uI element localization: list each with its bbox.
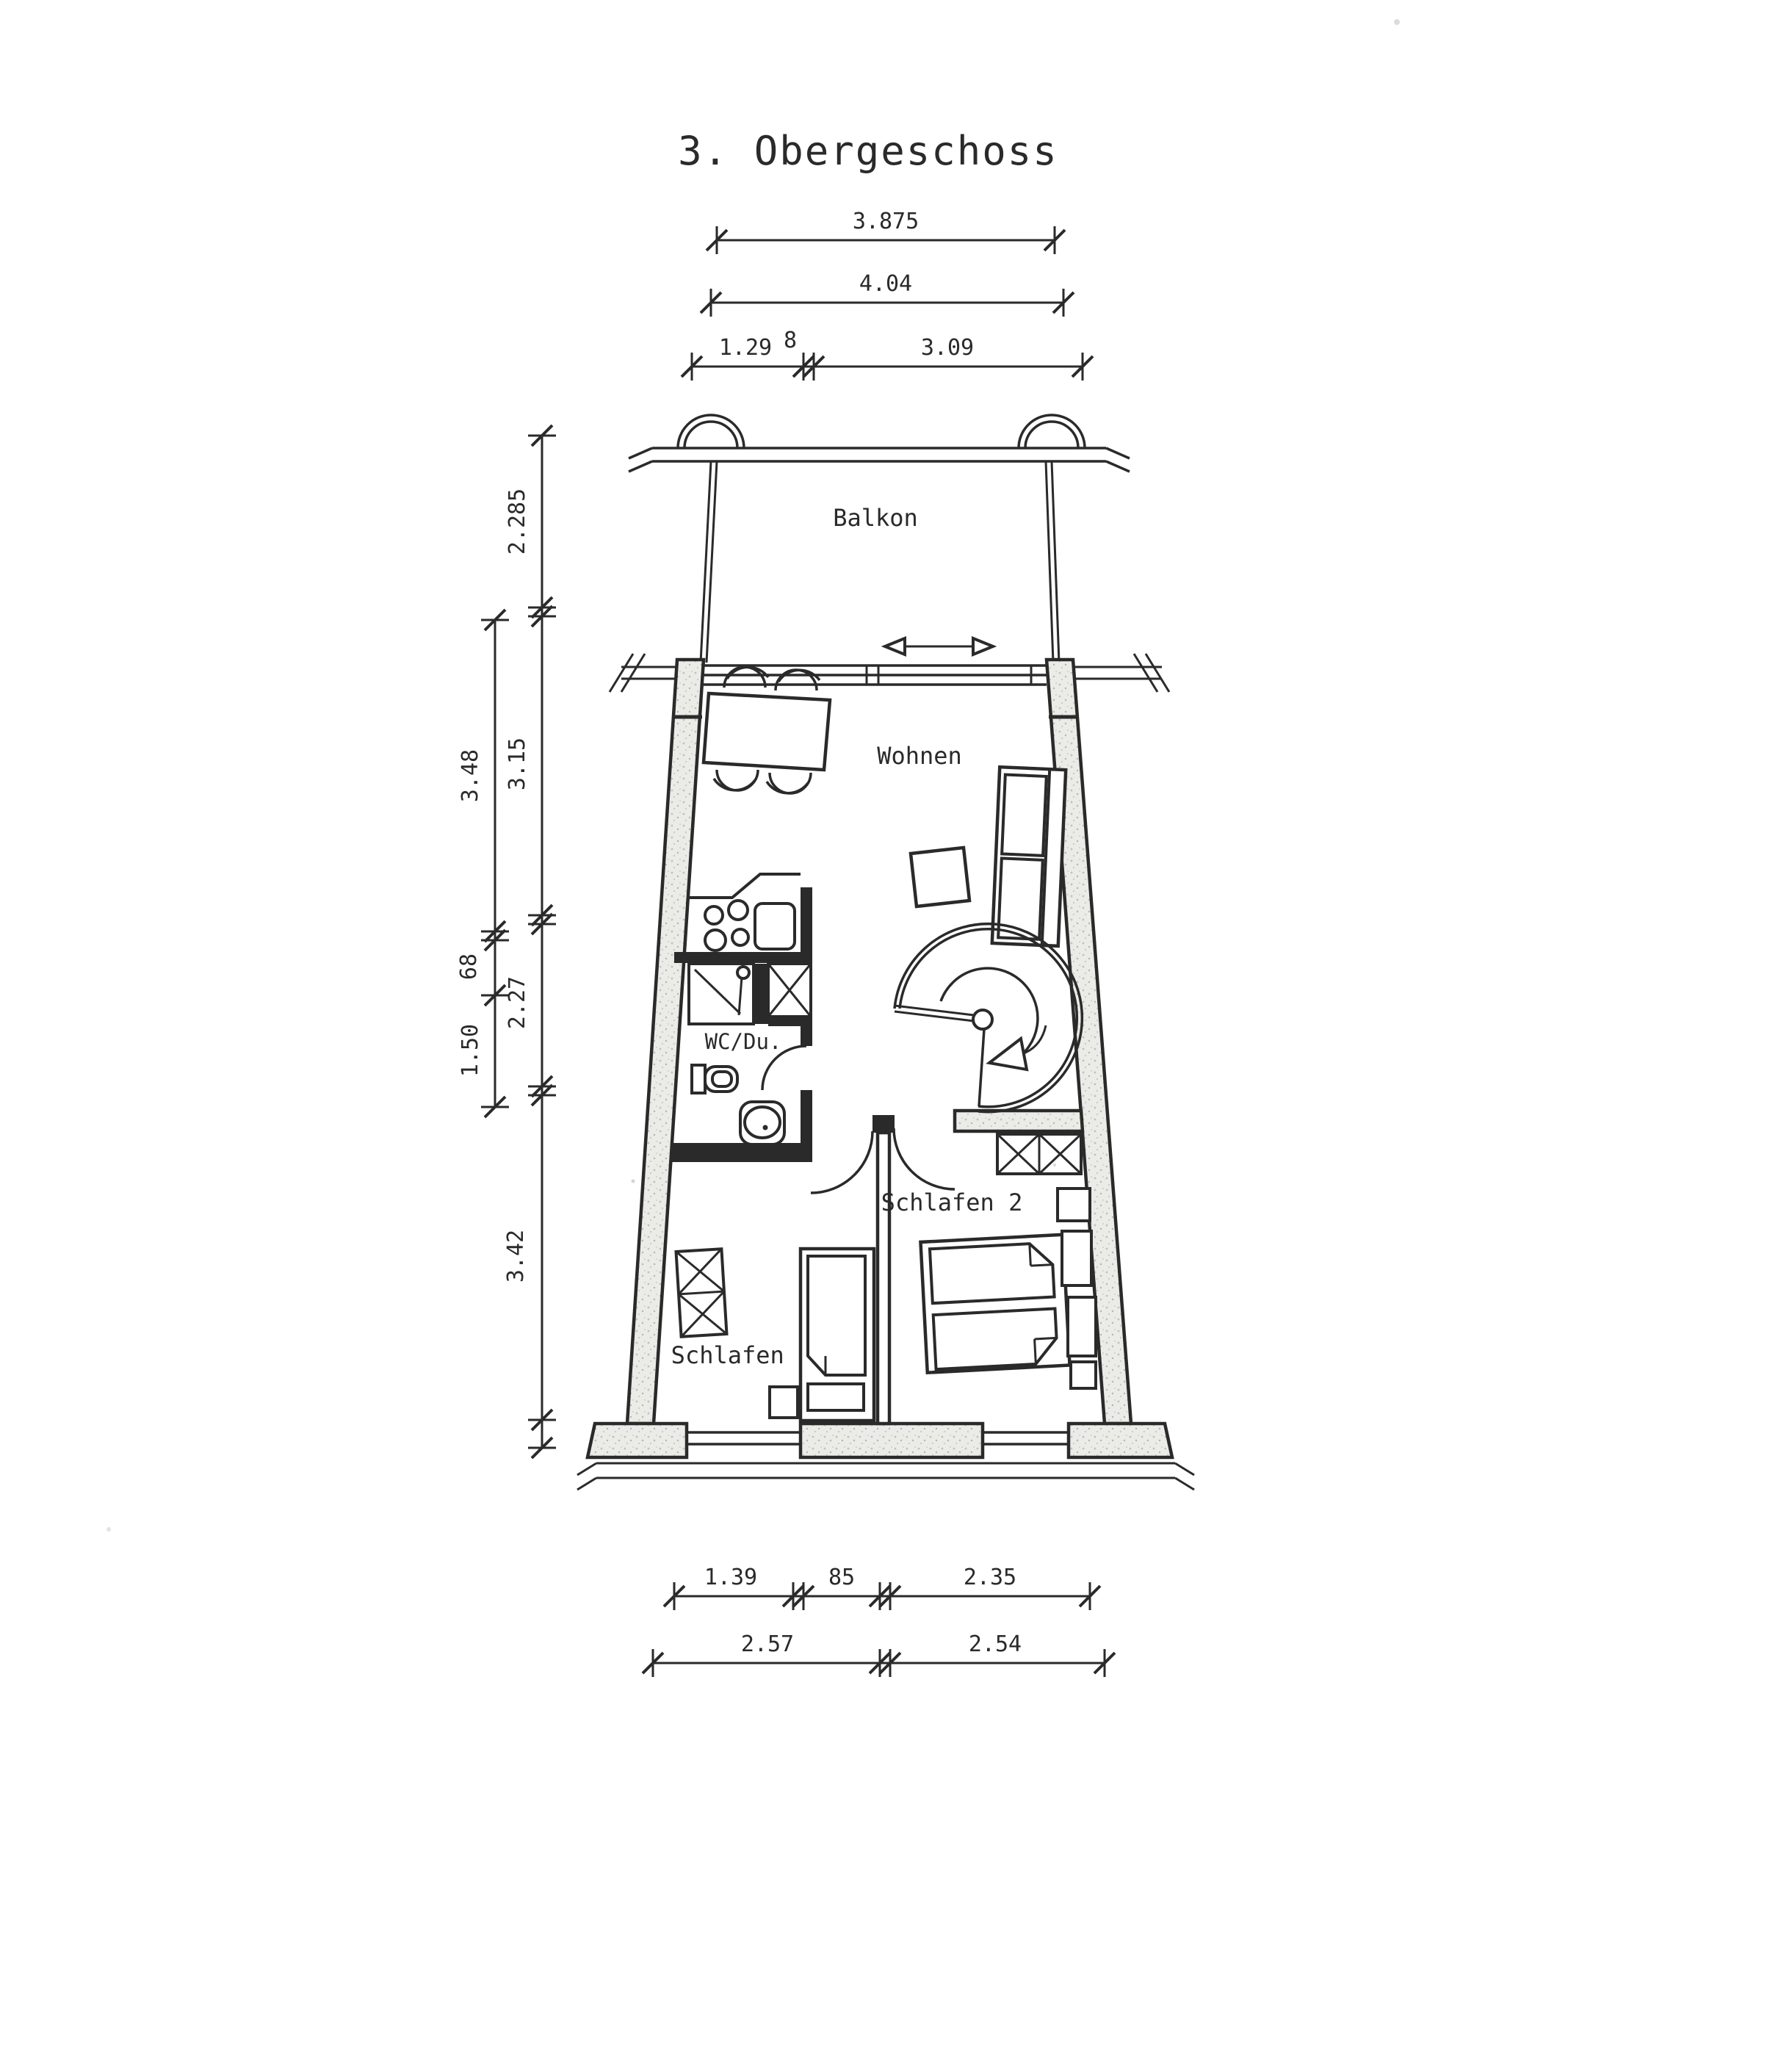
balcony-awning-left-icon — [678, 415, 744, 448]
window-bedroom1 — [687, 1432, 801, 1444]
balcony-awning-right-icon — [1019, 415, 1085, 448]
dim-label-bottom-257: 2.57 — [741, 1631, 794, 1657]
duct-shaft-icon — [768, 964, 811, 1017]
dim-label-left-227: 2.27 — [505, 976, 530, 1029]
wardrobe-bedroom2-icon — [997, 1134, 1081, 1174]
door-arc-bedroom2 — [894, 1128, 955, 1189]
wall-wc-bottom — [670, 1143, 812, 1162]
wall-partition-bedrooms — [878, 1133, 889, 1424]
dimension-chain-bottom: 1.39 85 2.35 2.57 2.54 — [643, 1565, 1115, 1677]
wall-wc-upper — [801, 1026, 812, 1046]
dim-label-bottom-235: 2.35 — [964, 1565, 1016, 1590]
washbasin-icon — [740, 1102, 784, 1144]
room-label-wc-du: WC/Du. — [705, 1029, 782, 1054]
kitchen — [687, 874, 801, 951]
bedroom-1: Schlafen 1 — [671, 1249, 874, 1421]
wall-bedroom2-top — [955, 1111, 1083, 1131]
dim-label-left-150: 1.50 — [458, 1024, 483, 1077]
room-label-schlafen1: Schlafen 1 — [671, 1341, 813, 1369]
kitchen-sink-icon — [755, 904, 795, 949]
coffee-table — [911, 848, 969, 906]
floorplan-drawing: 3. Obergeschoss 3.875 4.04 1.29 8 3.09 2… — [0, 0, 1792, 2045]
nightstand-bedroom1 — [770, 1387, 798, 1418]
wall-partition-cap — [872, 1115, 895, 1133]
scanned-floorplan-page: 3. Obergeschoss 3.875 4.04 1.29 8 3.09 2… — [0, 0, 1792, 2045]
wardrobe-bedroom1-icon — [676, 1249, 727, 1337]
wall-bottom — [577, 1424, 1194, 1490]
dim-label-top-309: 3.09 — [921, 335, 974, 361]
wall-shower-duct — [754, 964, 768, 1024]
dimension-chain-top: 3.875 4.04 1.29 8 3.09 — [682, 209, 1093, 380]
dim-label-top-404: 4.04 — [859, 271, 912, 297]
spiral-staircase — [895, 924, 1082, 1112]
dim-label-bottom-139: 1.39 — [704, 1565, 757, 1590]
balcony: Balkon — [629, 415, 1130, 663]
dim-label-top-8: 8 — [784, 328, 797, 353]
door-arc-bedroom1 — [811, 1131, 872, 1193]
dim-label-left-342: 3.42 — [503, 1230, 529, 1283]
sofa — [992, 767, 1066, 946]
page-title: 3. Obergeschoss — [678, 128, 1058, 174]
single-bed — [801, 1249, 874, 1421]
dim-label-left-2285: 2.285 — [505, 488, 530, 555]
sliding-door-arrow-icon — [885, 638, 993, 654]
dim-label-left-315: 3.15 — [505, 737, 530, 790]
dim-label-left-348: 3.48 — [458, 749, 483, 802]
toilet-icon — [692, 1065, 737, 1093]
room-label-balkon: Balkon — [833, 504, 918, 532]
dim-label-top-3875: 3.875 — [853, 209, 919, 234]
dining-table — [704, 693, 830, 770]
stove-icon — [705, 901, 748, 951]
dim-label-bottom-254: 2.54 — [969, 1631, 1022, 1657]
wall-kitchen-side — [801, 887, 812, 958]
window-sill-lines — [577, 1463, 1194, 1490]
shower-icon — [689, 964, 754, 1024]
wall-kitchen-bottom — [674, 952, 812, 963]
dim-label-top-129: 1.29 — [719, 335, 772, 361]
neighbor-wall-cut-right — [1073, 654, 1169, 692]
double-bed — [920, 1235, 1069, 1373]
window-bedroom2 — [983, 1432, 1069, 1444]
bathroom: WC/Du. — [689, 964, 811, 1144]
scan-artifacts — [106, 19, 1400, 1532]
room-label-wohnen: Wohnen — [877, 742, 962, 770]
dim-label-bottom-85: 85 — [828, 1565, 855, 1590]
neighbor-wall-cut-left — [610, 654, 677, 692]
dimension-chain-left: 2.285 3.15 2.27 3.42 3.48 68 1.50 — [456, 425, 556, 1458]
dim-label-left-68: 68 — [456, 953, 482, 980]
room-label-schlafen2: Schlafen 2 — [881, 1189, 1023, 1216]
stair-direction-arrow-icon — [989, 1025, 1046, 1070]
kitchen-counter — [687, 874, 801, 898]
